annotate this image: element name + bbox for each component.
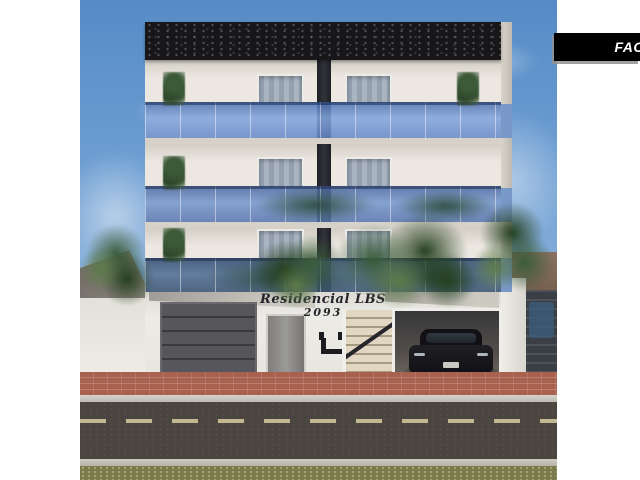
entrance-stairs: [342, 310, 392, 372]
entrance-door: [266, 314, 306, 374]
parapet: [145, 22, 501, 60]
window-floor3-left: [257, 74, 304, 105]
building-render-photo: Residencial LBS 2093: [80, 0, 557, 480]
balcony-plant: [163, 156, 185, 190]
sidewalk-pavers: [80, 372, 557, 395]
curb: [80, 395, 557, 402]
building-facade: Residencial LBS 2093: [145, 22, 501, 378]
street-tree: [80, 218, 160, 313]
window-floor3-right: [345, 74, 392, 105]
street-tree: [332, 214, 477, 312]
neighbor-house-right-gate-panel: [529, 302, 554, 338]
street-tree: [472, 200, 557, 305]
glass-panel-joints: [145, 102, 501, 138]
window-floor2-right: [345, 157, 392, 189]
curb: [80, 459, 557, 466]
balcony-plant: [163, 228, 185, 262]
street-tree: [250, 232, 345, 312]
car-headlight-right: [477, 353, 488, 356]
balcony-rail-floor3: [145, 102, 501, 144]
lane-line: [80, 419, 557, 423]
balcony-plant: [163, 72, 185, 106]
grass-strip: [80, 466, 557, 480]
side-glass-rail: [501, 104, 512, 138]
car-windshield: [426, 333, 476, 343]
page: Residencial LBS 2093: [0, 0, 640, 480]
black-suv: [409, 329, 493, 375]
car-headlight-left: [414, 353, 425, 356]
car-license-plate: [443, 362, 459, 368]
window-floor2-left: [257, 157, 304, 189]
handrail: [145, 102, 501, 105]
stair-handrail: [343, 316, 392, 359]
corner-ribbon-label: FAC: [615, 39, 640, 55]
corner-ribbon: FAC: [554, 33, 640, 61]
open-garage: [392, 308, 502, 375]
road: [80, 402, 557, 459]
balcony-plant: [457, 72, 479, 106]
garage-door: [160, 302, 257, 374]
